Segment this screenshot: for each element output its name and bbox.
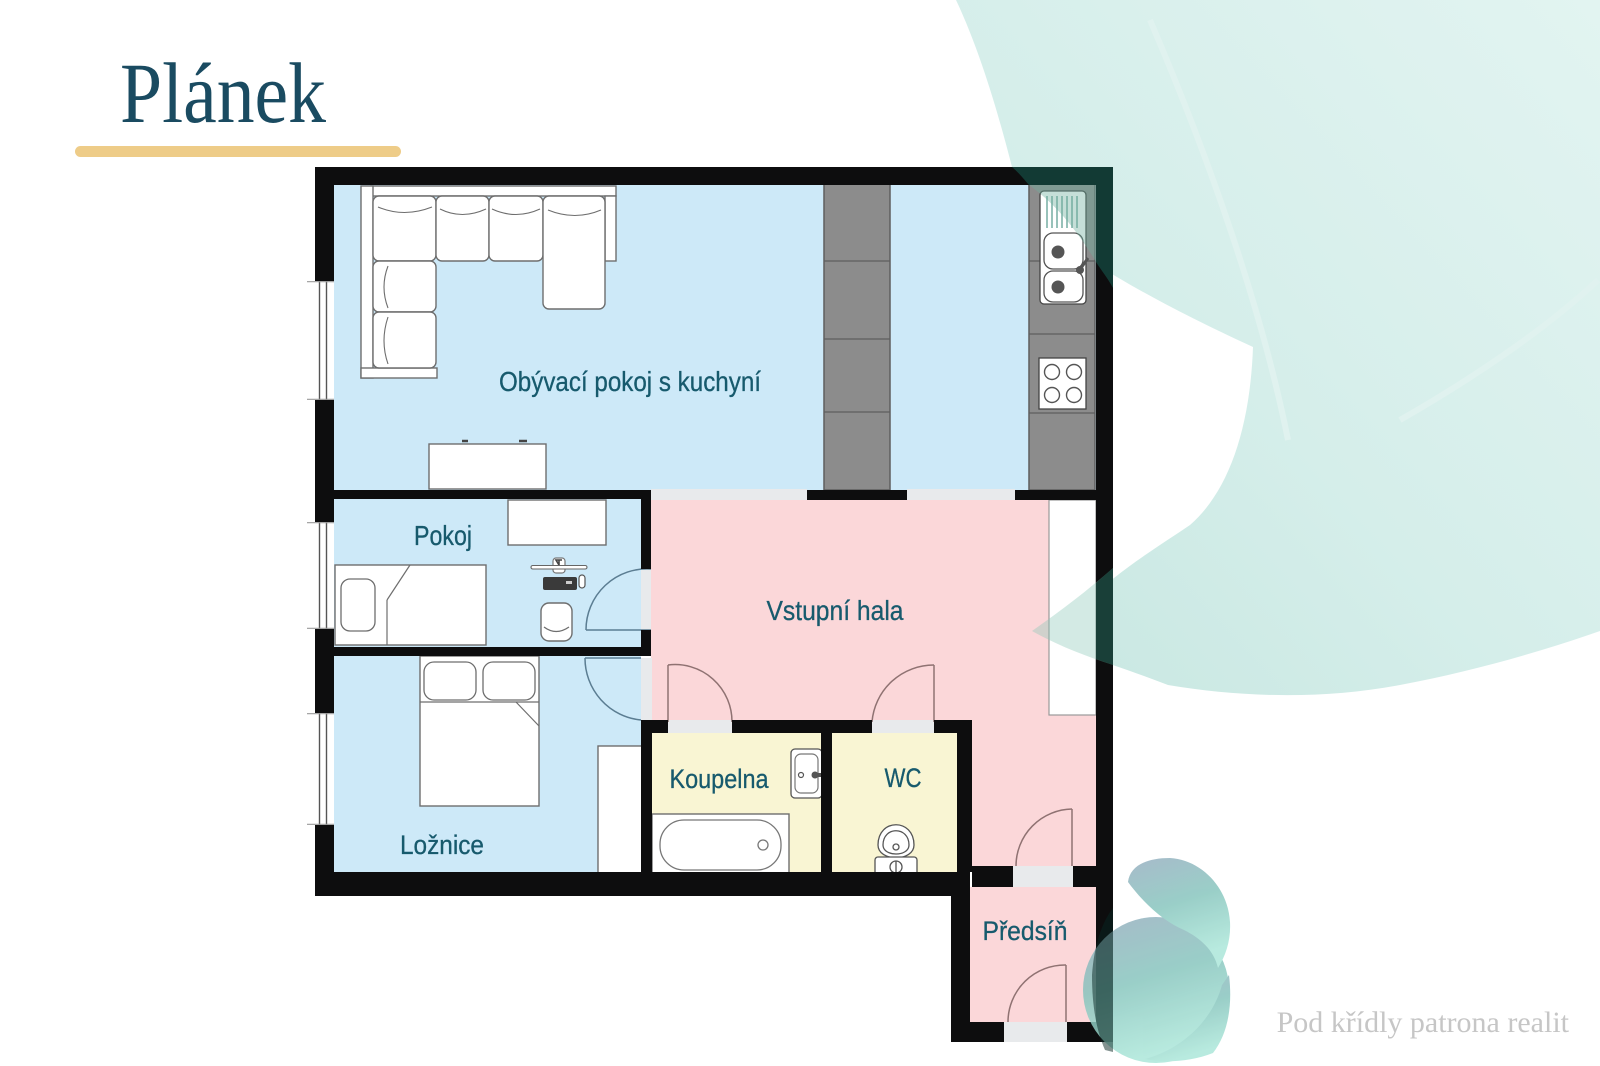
svg-text:Obývací pokoj s kuchyní: Obývací pokoj s kuchyní (499, 366, 761, 397)
svg-text:Koupelna: Koupelna (670, 764, 770, 794)
svg-text:Vstupní hala: Vstupní hala (767, 595, 904, 626)
svg-text:Předsíň: Předsíň (983, 916, 1068, 946)
svg-text:Pokoj: Pokoj (414, 520, 472, 551)
svg-text:WC: WC (885, 763, 922, 793)
svg-text:Pod křídly patrona realit: Pod křídly patrona realit (1277, 1006, 1570, 1039)
svg-text:Ložnice: Ložnice (400, 830, 484, 860)
svg-text:Plánek: Plánek (120, 45, 326, 141)
